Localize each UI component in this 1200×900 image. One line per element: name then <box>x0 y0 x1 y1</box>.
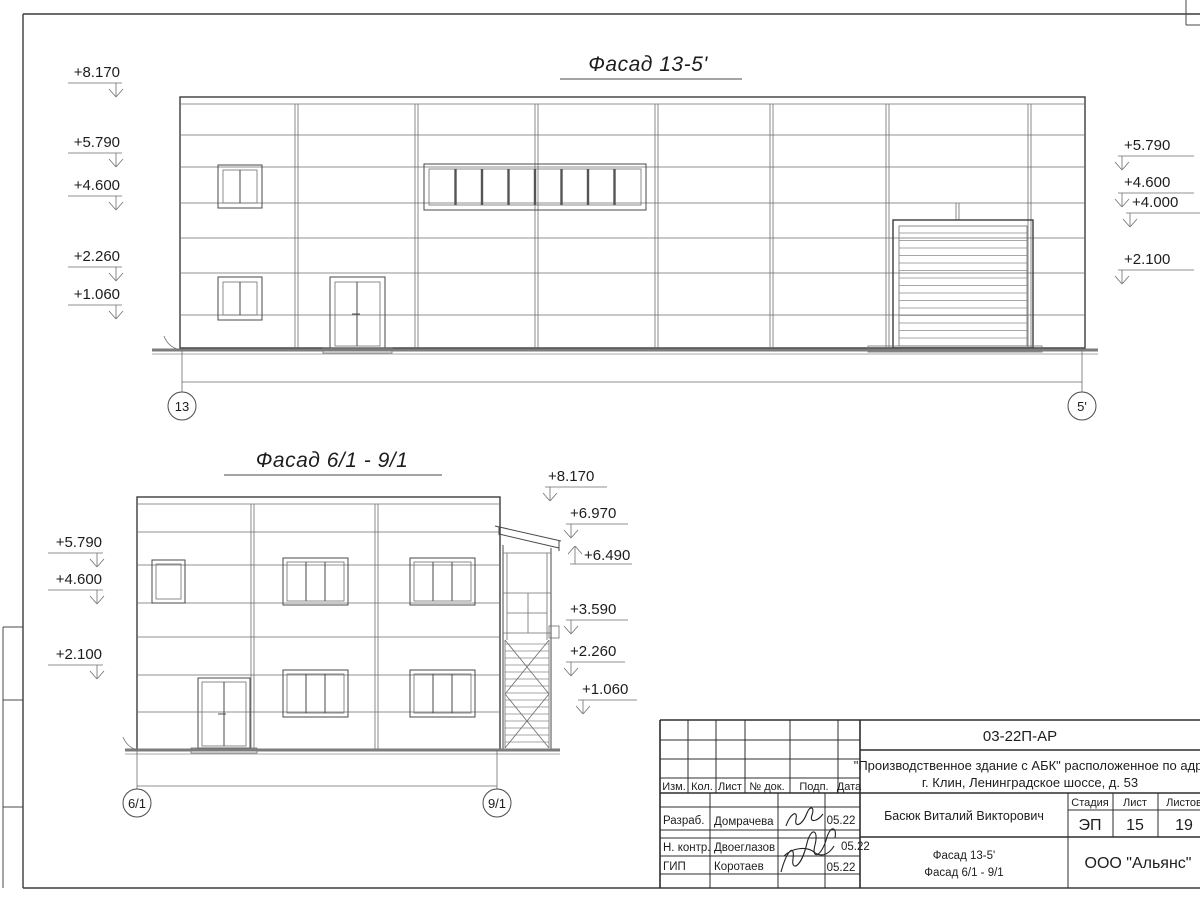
col-sign: Подп. <box>799 781 828 793</box>
facade2-elevation-marks-left: +5.790 +4.600 +2.100 <box>48 534 104 679</box>
signature-scribble <box>786 808 823 826</box>
elevation-mark: +4.600 <box>1124 174 1170 191</box>
stair-bracing <box>505 640 549 748</box>
drawing-title-line2: Фасад 6/1 - 9/1 <box>924 867 1003 879</box>
elevation-mark: +5.790 <box>1124 137 1170 154</box>
facade1-window-lower-left <box>218 277 262 320</box>
col-izm: Изм. <box>662 781 686 793</box>
facade2-window-lower-mid <box>283 670 348 717</box>
facade1-title: Фасад 13-5' <box>588 53 708 76</box>
elevation-mark: +2.100 <box>1124 251 1170 268</box>
facade2-entrance-door <box>191 678 257 753</box>
axis-label-13: 13 <box>175 399 189 414</box>
elevation-mark: +8.170 <box>74 64 120 81</box>
elevation-mark: +1.060 <box>74 286 120 303</box>
stage-value: ЭП <box>1079 817 1102 834</box>
axis-label-9-1: 9/1 <box>488 796 506 811</box>
col-kol: Кол. <box>691 781 713 793</box>
facade2-window-small <box>152 560 185 603</box>
role-date: 05.22 <box>827 862 856 874</box>
facade2-axes: 6/1 9/1 <box>123 750 511 817</box>
elevation-mark: +5.790 <box>56 534 102 551</box>
sheets-label: Листов <box>1166 797 1200 809</box>
facade1-axes: 13 5' <box>168 350 1096 420</box>
elevation-mark: +4.600 <box>74 177 120 194</box>
title-block-signature-rows: Разраб. Домрачева 05.22 Н. контр. Двоегл… <box>663 808 870 874</box>
col-list: Лист <box>718 781 742 793</box>
sheet-label: Лист <box>1123 797 1147 809</box>
project-name-line1: "Производственное здание с АБК" располож… <box>854 758 1200 773</box>
signature-scribble <box>784 846 834 856</box>
project-name-line2: г. Клин, Ленинградское шоссе, д. 53 <box>922 775 1138 790</box>
axis-label-6-1: 6/1 <box>128 796 146 811</box>
facade1-elevation-marks-left: +8.170 +5.790 +4.600 +2.260 +1.060 <box>68 64 123 319</box>
title-block-column-headers: Изм. Кол. Лист № док. Подп. Дата <box>662 781 862 793</box>
title-block: Изм. Кол. Лист № док. Подп. Дата Разраб.… <box>660 720 1200 888</box>
elevation-mark: +8.170 <box>548 468 594 485</box>
facade1-elevation-marks-right: +5.790 +4.600 +4.000 +2.100 <box>1115 137 1200 284</box>
stair-treads <box>505 644 549 742</box>
role-name: Домрачева <box>714 816 774 828</box>
axis-label-5: 5' <box>1077 399 1087 414</box>
elevation-mark: +2.260 <box>570 643 616 660</box>
elevation-mark: +3.590 <box>570 601 616 618</box>
elevation-mark: +1.060 <box>582 681 628 698</box>
facade1-sectional-gate <box>868 203 1042 352</box>
tower-glazing <box>507 593 547 633</box>
elevation-mark: +6.970 <box>570 505 616 522</box>
canopy-roof <box>495 526 561 551</box>
facade1-panel-joints <box>180 135 1085 315</box>
approver-name: Басюк Виталий Викторович <box>884 809 1044 823</box>
facade2-stair-tower <box>495 526 561 750</box>
facade2-panel-joints <box>137 532 500 712</box>
role-label: Разраб. <box>663 815 704 827</box>
elevation-mark: +4.600 <box>56 571 102 588</box>
facade2-window-lower-right <box>410 670 475 717</box>
sheet-frame <box>3 0 1200 888</box>
facade-13-5: Фасад 13-5' <box>68 53 1200 420</box>
role-date: 05.22 <box>841 841 870 853</box>
document-code: 03-22П-АР <box>983 728 1057 745</box>
elevation-mark: +4.000 <box>1132 194 1178 211</box>
elevation-mark: +2.260 <box>74 248 120 265</box>
role-name: Коротаев <box>714 861 764 873</box>
col-date: Дата <box>837 781 862 793</box>
sheet-number: 15 <box>1126 817 1144 834</box>
facade1-window-upper-left <box>218 165 262 208</box>
elevation-mark: +5.790 <box>74 134 120 151</box>
role-label: Н. контр. <box>663 842 710 854</box>
drawing-sheet: Фасад 13-5' <box>0 0 1200 900</box>
frame-left-cells <box>3 627 23 888</box>
stage-label: Стадия <box>1071 797 1109 809</box>
sheets-total: 19 <box>1175 817 1193 834</box>
facade2-elevation-marks-right: +8.170 +6.970 +6.490 +3.590 +2.260 +1.06… <box>543 468 637 714</box>
frame-corner-box <box>1186 0 1200 25</box>
company-name: ООО "Альянс" <box>1085 855 1192 872</box>
drawing-title-line1: Фасад 13-5' <box>933 850 995 862</box>
col-doc: № док. <box>749 781 784 793</box>
role-label: ГИП <box>663 861 686 873</box>
elevation-mark: +6.490 <box>584 547 630 564</box>
facade-6-1-9-1: Фасад 6/1 - 9/1 <box>48 449 637 817</box>
elevation-mark: +2.100 <box>56 646 102 663</box>
facade2-title: Фасад 6/1 - 9/1 <box>256 449 409 472</box>
role-date: 05.22 <box>827 815 856 827</box>
role-name: Двоеглазов <box>714 842 775 854</box>
